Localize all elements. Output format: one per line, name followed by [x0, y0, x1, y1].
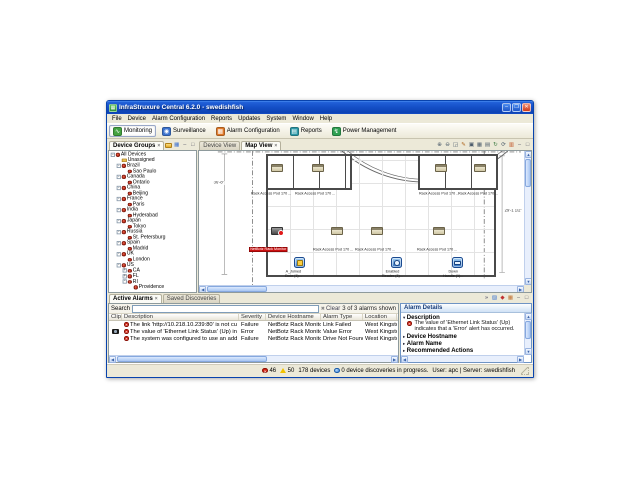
alarm-description: The system was configured to use an add-… [130, 336, 237, 342]
section-label: Recommended Actions [407, 348, 473, 354]
toolbar-button-label: Surveillance [173, 128, 206, 134]
cell-alarm-type: Value Error [321, 328, 363, 335]
clear-search-label: Clear [326, 306, 340, 312]
tab-saved-discoveries[interactable]: Saved Discoveries [163, 294, 221, 303]
show-more-icon[interactable]: » [483, 295, 490, 302]
device-count-status: 178 devices [298, 368, 330, 374]
tree-item-label: RI [133, 279, 138, 284]
discovery-text: 0 device discoveries in progress. [341, 368, 428, 374]
device-group-icon [122, 252, 126, 256]
device-group-icon [128, 269, 132, 273]
map-tabs: Device View Map View × ⊕⊖◲✎▣▦▤↻⟳▥ – □ [198, 140, 532, 150]
expander-icon[interactable]: - [117, 164, 121, 168]
scroll-right-icon[interactable]: ▶ [391, 356, 398, 363]
device-group-icon [122, 208, 126, 212]
column-header-location[interactable]: Location [363, 314, 397, 320]
alarm-details-title: Alarm Details [401, 304, 531, 313]
menu-window[interactable]: Window [289, 116, 316, 122]
tab-device-groups[interactable]: Device Groups × [109, 141, 164, 150]
clear-search-icon: ✖ [321, 306, 325, 312]
section-body: ✕The value of 'Ethernet Link Status' (Up… [407, 321, 522, 333]
app-window: ▦ InfraStruxure Central 6.2.0 - swedishf… [106, 100, 534, 378]
rack-label[interactable]: Rack Access Pod 170 ... [313, 248, 353, 252]
device-group-icon [122, 186, 126, 190]
menu-help[interactable]: Help [317, 116, 335, 122]
alarm-row[interactable]: ✕The system was configured to use an add… [109, 335, 398, 342]
device-group-icon [128, 258, 132, 262]
alarm-badge-icon[interactable]: ◆ [499, 295, 506, 302]
alarms-panel: Active Alarms × Saved Discoveries Search… [108, 293, 399, 363]
device-group-icon [128, 236, 132, 240]
app-icon: ▦ [109, 104, 117, 112]
device-group-icon [116, 153, 120, 157]
main-row: Device Groups × ▦ – □ -All DevicesUnassi… [107, 139, 533, 293]
statusbar: ✕ 46 50 178 devices 0 device discoveries… [107, 363, 533, 377]
device-groups-panel: -All DevicesUnassigned-BrazilSao Paulo-C… [108, 150, 197, 293]
maximize-window-button[interactable]: ❐ [512, 103, 521, 112]
cell-clip [109, 321, 122, 328]
expand-icon: ▸ [403, 348, 405, 354]
refresh-map-icon[interactable]: ⟳ [500, 142, 507, 149]
expander-icon[interactable]: - [117, 175, 121, 179]
device-group-icon [128, 180, 132, 184]
minimize-panel-icon[interactable]: – [515, 295, 522, 302]
severity-error-icon: ✕ [407, 321, 412, 326]
toolbar-button-label: Reports [301, 128, 322, 134]
tree-item-label: Madrid [133, 246, 149, 251]
map-toolbar: ⊕⊖◲✎▣▦▤↻⟳▥ – □ [436, 142, 532, 150]
expander-icon[interactable]: - [117, 197, 121, 201]
toolbar-button-surveillance[interactable]: ◉Surveillance [158, 125, 210, 137]
scroll-up-icon[interactable]: ▲ [525, 151, 532, 158]
titlebar[interactable]: ▦ InfraStruxure Central 6.2.0 - swedishf… [107, 101, 533, 114]
details-toolbar: »▨◆▦ – □ [400, 293, 532, 303]
alarm-table-header: ClipDescriptionSeverityDevice HostnameAl… [109, 314, 398, 321]
alarm-description: The value of 'Ethernet Link Status' (Up)… [130, 329, 237, 335]
desktop: { "window": { "title": "InfraStruxure Ce… [0, 0, 640, 480]
maximize-panel-icon[interactable]: □ [189, 142, 196, 149]
expander-icon[interactable]: + [123, 269, 127, 273]
severity-error-icon: ✕ [124, 322, 129, 327]
alarm-count-text: 3 of 3 alarms shown [342, 306, 396, 312]
tab-map-view[interactable]: Map View × [241, 141, 281, 150]
tree-item-label: All Devices [121, 152, 146, 157]
pin-panel-icon[interactable]: ▨ [491, 295, 498, 302]
close-window-button[interactable]: ✕ [522, 103, 531, 112]
column-header-device-hostname[interactable]: Device Hostname [266, 314, 321, 320]
map-panel: Device View Map View × ⊕⊖◲✎▣▦▤↻⟳▥ – □ [198, 140, 532, 293]
camera-clip-icon[interactable] [112, 329, 119, 334]
device-group-icon [122, 241, 126, 245]
device-label[interactable]: A_JoinedDoor (1)... [285, 270, 302, 278]
cell-location: West Kingston [363, 328, 397, 335]
expander-icon[interactable]: + [123, 274, 127, 278]
tree-item-label: Sao Paulo [133, 169, 157, 174]
warning-count: 50 [288, 368, 295, 374]
tab-map-view-label: Map View [245, 143, 272, 149]
toolbar-button-power-management[interactable]: ↯Power Management [328, 125, 401, 137]
device-group-icon [134, 285, 138, 289]
cell-description: ✕The link 'http://10.218.10.239:80' is n… [122, 321, 239, 328]
toolbar-button-label: Power Management [343, 128, 397, 134]
cell-device-hostname: NetBotz Rack Monitor 550 [266, 321, 321, 328]
tree-item-label: India [127, 207, 138, 212]
tree-item-label: US [127, 263, 134, 268]
handle-device-icon[interactable] [452, 257, 463, 268]
device-group-icon [128, 225, 132, 229]
device-group-icon [128, 274, 132, 278]
scroll-left-icon[interactable]: ◀ [401, 356, 408, 363]
alarm-details-panel: »▨◆▦ – □ Alarm Details ▾Description✕The … [400, 293, 532, 363]
discovery-globe-icon [334, 368, 340, 374]
tree-item-label: Canada [127, 174, 145, 179]
rotate-map-icon[interactable]: ↻ [492, 142, 499, 149]
grid-view-icon[interactable]: ▦ [476, 142, 483, 149]
maximize-panel-icon[interactable]: □ [523, 295, 530, 302]
tree-item-label: France [127, 196, 143, 201]
tree-item-label: Russia [127, 229, 143, 234]
edit-map-icon[interactable]: ✎ [460, 142, 467, 149]
cell-severity: Failure [239, 321, 266, 328]
tree-item-label: China [127, 185, 140, 190]
clear-search-button[interactable]: ✖ Clear [321, 306, 341, 312]
device-group-icon [122, 197, 126, 201]
alarm-search-input[interactable] [132, 305, 319, 313]
menu-system[interactable]: System [263, 116, 289, 122]
menu-device[interactable]: Device [125, 116, 149, 122]
cell-alarm-type: Drive Not Found [321, 335, 363, 342]
section-device-hostname[interactable]: ▸Device Hostname [403, 334, 522, 341]
column-header-severity[interactable]: Severity [239, 314, 266, 320]
alarm-configuration-icon: ▦ [216, 127, 225, 136]
scroll-left-icon[interactable]: ◀ [199, 286, 206, 293]
device-group-icon [122, 230, 126, 234]
expander-icon[interactable]: - [117, 230, 121, 234]
add-group-icon[interactable] [165, 143, 172, 148]
device-group-icon [128, 213, 132, 217]
close-tab-icon[interactable]: × [274, 144, 277, 149]
device-label[interactable]: DownHandle (1)... [443, 270, 463, 278]
alarms-horizontal-scrollbar[interactable]: ◀ ▶ [109, 355, 398, 362]
expand-icon: ▸ [403, 334, 405, 340]
cell-clip [109, 335, 122, 342]
rack-device-icon[interactable] [312, 164, 324, 172]
tree-item-label: Providence [139, 285, 165, 290]
device-label-line: Door (1)... [285, 274, 302, 278]
details-toolbar-icons: »▨◆▦ [483, 295, 514, 302]
alarm-details-content: ▾Description✕The value of 'Ethernet Link… [401, 313, 524, 355]
map-vertical-scrollbar[interactable]: ▲ ▼ [524, 151, 531, 285]
rack-device-icon[interactable] [435, 164, 447, 172]
scroll-right-icon[interactable]: ▶ [517, 356, 524, 363]
cell-severity: Error [239, 328, 266, 335]
details-vertical-scrollbar[interactable]: ▲ ▼ [524, 313, 531, 355]
folder-icon [122, 158, 127, 161]
rack-device-icon[interactable] [474, 164, 486, 172]
app-toolbar: ∿Monitoring◉Surveillance▦Alarm Configura… [107, 124, 533, 139]
minimize-panel-icon[interactable]: – [516, 142, 523, 149]
session-text: User: apc | Server: swedishfish [432, 368, 515, 374]
minimize-window-button[interactable]: – [502, 103, 511, 112]
discovery-status: 0 device discoveries in progress. [334, 368, 428, 374]
toolbar-button-alarm-configuration[interactable]: ▦Alarm Configuration [212, 125, 284, 137]
alarm-details-view: Alarm Details ▾Description✕The value of … [400, 303, 532, 363]
tab-device-view-label: Device View [203, 143, 236, 149]
building-icon[interactable]: ▦ [507, 295, 514, 302]
column-header-description[interactable]: Description [122, 314, 239, 320]
bottom-row: Active Alarms × Saved Discoveries Search… [107, 293, 533, 363]
warning-alarms-status[interactable]: 50 [280, 368, 294, 374]
device-group-icon [122, 175, 126, 179]
monitoring-icon: ∿ [113, 127, 122, 136]
tree-item-label: Beijing [133, 191, 148, 196]
scrollbar-thumb[interactable] [117, 356, 267, 362]
rack-device-icon[interactable] [331, 227, 343, 235]
zoom-in-icon[interactable]: ⊕ [436, 142, 443, 149]
device-group-icon [128, 169, 132, 173]
device-group-icon [128, 247, 132, 251]
details-horizontal-scrollbar[interactable]: ◀ ▶ [401, 355, 524, 362]
scroll-right-icon[interactable]: ▶ [517, 286, 524, 293]
rack-label[interactable]: Rack Access Pod 170 ... [295, 192, 335, 196]
cell-clip [109, 328, 122, 335]
rack-row-right [418, 154, 498, 190]
device-label-line: Reader (1)... [382, 274, 403, 278]
tree-item-label: Tokyo [133, 224, 146, 229]
device-label-line: Handle (1)... [443, 274, 463, 278]
camera-device-icon[interactable] [271, 227, 283, 235]
tab-active-alarms[interactable]: Active Alarms × [109, 294, 162, 303]
cell-location: West Kingston [363, 321, 397, 328]
alarms-tabs: Active Alarms × Saved Discoveries [108, 293, 399, 303]
tree-item-label: St. Petersburg [133, 235, 166, 240]
cell-alarm-type: Link Failed [321, 321, 363, 328]
expander-icon[interactable]: - [123, 280, 127, 284]
manage-groups-icon[interactable]: ▦ [173, 142, 180, 149]
tree-item-label: FL [133, 274, 139, 279]
severity-error-icon: ✕ [124, 336, 129, 341]
cell-location: West Kingston [363, 335, 397, 342]
alarm-description: The link 'http://10.218.10.239:80' is no… [130, 322, 237, 328]
expander-icon[interactable]: - [117, 263, 121, 267]
zoom-out-icon[interactable]: ⊖ [444, 142, 451, 149]
tab-active-alarms-label: Active Alarms [113, 296, 153, 302]
tree-item-label: Hyderabad [133, 213, 158, 218]
sidebar: Device Groups × ▦ – □ -All DevicesUnassi… [108, 140, 197, 293]
expander-icon[interactable]: - [117, 252, 121, 256]
door-device-icon[interactable] [294, 257, 305, 268]
section-alarm-name[interactable]: ▸Alarm Name [403, 341, 522, 348]
cell-severity: Failure [239, 335, 266, 342]
map-view-panel: 36'-8" 29'-1 1/2" Rack Access Pod 170 ..… [198, 150, 532, 293]
tree-item-label: London [133, 257, 150, 262]
rack-label[interactable]: Rack Access Pod 170 ... [458, 192, 498, 196]
device-group-icon [128, 191, 132, 195]
warning-status-icon [280, 368, 286, 373]
section-label: Device Hostname [407, 334, 457, 340]
alarm-table-rows: ✕The link 'http://10.218.10.239:80' is n… [109, 321, 398, 342]
map-horizontal-scrollbar[interactable]: ◀ ▶ [199, 285, 524, 292]
cell-device-hostname: NetBotz Rack Monitor 550 [266, 328, 321, 335]
tree-item-label: Japan [127, 218, 141, 223]
critical-status-icon: ✕ [262, 368, 268, 374]
menu-reports[interactable]: Reports [208, 116, 235, 122]
section-recommended-actions[interactable]: ▸Recommended Actions [403, 348, 522, 355]
tab-device-view[interactable]: Device View [199, 141, 240, 150]
reader-device-icon[interactable] [391, 257, 402, 268]
scroll-left-icon[interactable]: ◀ [109, 356, 116, 363]
tab-device-groups-label: Device Groups [113, 143, 155, 149]
maximize-panel-icon[interactable]: □ [524, 142, 531, 149]
expander-icon[interactable]: - [117, 241, 121, 245]
rack-label[interactable]: Rack Access Pod 170 ... [417, 248, 457, 252]
search-label: Search [111, 306, 130, 312]
device-group-icon [122, 164, 126, 168]
sidebar-toolbar: ▦ – □ [165, 142, 197, 150]
rack-device-icon[interactable] [433, 227, 445, 235]
resize-grip[interactable] [521, 367, 529, 375]
alert-device-label[interactable]: NetBotz Rack Monitor [249, 247, 288, 252]
cell-description: ✕The system was configured to use an add… [122, 335, 239, 342]
toolbar-button-monitoring[interactable]: ∿Monitoring [109, 125, 156, 137]
column-header-clip[interactable]: Clip [109, 314, 122, 320]
critical-alarms-status[interactable]: ✕ 46 [262, 368, 276, 374]
window-controls: – ❐ ✕ [502, 103, 531, 112]
tree-item-label: CA [133, 268, 140, 273]
zoom-selection-icon[interactable]: ◲ [452, 142, 459, 149]
menu-alarm-configuration[interactable]: Alarm Configuration [149, 116, 208, 122]
map-toolbar-icons: ⊕⊖◲✎▣▦▤↻⟳▥ [436, 142, 515, 149]
alarm-row[interactable]: ✕The value of 'Ethernet Link Status' (Up… [109, 328, 398, 335]
tree-item-label: Unassigned [128, 158, 155, 163]
expander-icon[interactable]: - [117, 219, 121, 223]
reports-icon: ▤ [290, 127, 299, 136]
tab-saved-discoveries-label: Saved Discoveries [167, 296, 217, 302]
expand-icon: ▸ [403, 341, 405, 347]
rack-label[interactable]: Rack Access Pod 170 ... [251, 192, 291, 196]
toolbar-button-label: Alarm Configuration [227, 128, 280, 134]
device-count: 178 devices [298, 368, 330, 374]
active-alarms-view: Search ✖ Clear 3 of 3 alarms shown ClipD… [108, 303, 399, 363]
device-label[interactable]: EnabledReader (1)... [382, 270, 403, 278]
rack-label[interactable]: Rack Access Pod 170 ... [419, 192, 459, 196]
tree-item-providence[interactable]: Providence [110, 284, 197, 290]
rack-row-left [266, 154, 352, 190]
alarm-search-row: Search ✖ Clear 3 of 3 alarms shown [109, 304, 398, 314]
alarm-description-text: The value of 'Ethernet Link Status' (Up)… [415, 321, 523, 333]
cell-device-hostname: NetBotz Rack Monitor 550 [266, 335, 321, 342]
scroll-down-icon[interactable]: ▼ [525, 348, 532, 355]
scrollbar-thumb[interactable] [525, 321, 531, 339]
menubar: FileDeviceAlarm ConfigurationReportsUpda… [107, 114, 533, 124]
device-group-icon [122, 219, 126, 223]
menu-updates[interactable]: Updates [235, 116, 263, 122]
sidebar-tabs: Device Groups × ▦ – □ [108, 140, 197, 150]
scroll-down-icon[interactable]: ▼ [525, 278, 532, 285]
session-status: User: apc | Server: swedishfish [432, 368, 515, 374]
device-group-icon [128, 280, 132, 284]
tree-item-label: Brazil [127, 163, 140, 168]
severity-error-icon: ✕ [124, 329, 129, 334]
menu-file[interactable]: File [109, 116, 125, 122]
tree-item-label: Spain [127, 240, 140, 245]
toolbar-button-label: Monitoring [124, 128, 152, 134]
expander-icon[interactable]: - [117, 208, 121, 212]
tree-item-label: Paris [133, 202, 145, 207]
close-tab-icon[interactable]: × [155, 297, 158, 302]
power-management-icon: ↯ [332, 127, 341, 136]
dimension-label-left: 36'-8" [213, 181, 225, 185]
layers-icon[interactable]: ▤ [484, 142, 491, 149]
status-items: ✕ 46 50 178 devices 0 device discoveries… [262, 367, 529, 375]
copy-map-icon[interactable]: ▣ [468, 142, 475, 149]
column-header-alarm-type[interactable]: Alarm Type [321, 314, 363, 320]
rack-device-icon[interactable] [271, 164, 283, 172]
device-group-icon [122, 263, 126, 267]
minimize-panel-icon[interactable]: – [181, 142, 188, 149]
expander-icon[interactable]: - [111, 152, 115, 156]
critical-count: 46 [269, 368, 276, 374]
dimension-label-right: 29'-1 1/2" [504, 209, 523, 213]
floor-plan-canvas[interactable]: 36'-8" 29'-1 1/2" Rack Access Pod 170 ..… [199, 151, 524, 285]
tree-item-label: UK [127, 252, 134, 257]
close-tab-icon[interactable]: × [157, 144, 160, 149]
section-label: Alarm Name [407, 341, 442, 347]
expander-icon[interactable]: - [117, 186, 121, 190]
surveillance-icon: ◉ [162, 127, 171, 136]
device-group-icon [128, 202, 132, 206]
alarm-row[interactable]: ✕The link 'http://10.218.10.239:80' is n… [109, 321, 398, 328]
window-title: InfraStruxure Central 6.2.0 - swedishfis… [119, 104, 500, 111]
toolbar-button-reports[interactable]: ▤Reports [286, 125, 326, 137]
building-view-icon[interactable]: ▥ [508, 142, 515, 149]
cell-description: ✕The value of 'Ethernet Link Status' (Up… [122, 328, 239, 335]
device-tree: -All DevicesUnassigned-BrazilSao Paulo-C… [109, 151, 197, 290]
rack-device-icon[interactable] [371, 227, 383, 235]
scroll-up-icon[interactable]: ▲ [525, 313, 532, 320]
scrollbar-thumb[interactable] [207, 286, 267, 292]
collapse-icon: ▾ [403, 315, 405, 321]
rack-label[interactable]: Rack Access Pod 170 ... [355, 248, 395, 252]
scrollbar-thumb[interactable] [525, 159, 531, 187]
tree-item-label: Ontario [133, 180, 150, 185]
